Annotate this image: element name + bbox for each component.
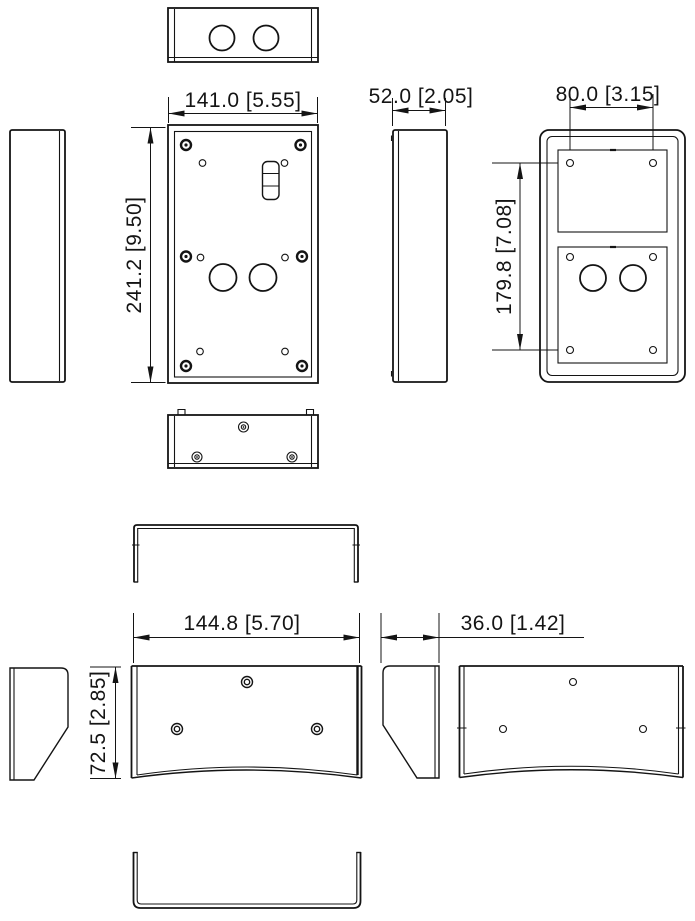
dim-hood-height: 72.5 [2.85]: [87, 667, 121, 779]
box-bottom-view: [168, 410, 318, 469]
dim-box-height: 241.2 [9.50]: [123, 128, 166, 383]
dim-box-width: 141.0 [5.55]: [169, 89, 318, 123]
box-top-view: [168, 8, 318, 62]
box-front-view: [168, 125, 318, 383]
dim-box-depth: 52.0 [2.05]: [369, 85, 474, 126]
conduit-hole: [620, 265, 646, 291]
dim-hood-width: 144.8 [5.70]: [134, 612, 360, 663]
dim-label-hood-height: 72.5 [2.85]: [87, 671, 110, 776]
technical-drawing: 141.0 [5.55] 52.0 [2.05] 80.0 [3.15]: [0, 0, 695, 921]
mount-hole: [500, 679, 647, 733]
dim-label-box-height: 241.2 [9.50]: [123, 197, 146, 314]
dim-label-box-width: 141.0 [5.55]: [185, 89, 302, 112]
hood-front-view: [132, 666, 362, 778]
box-side-view: [392, 130, 448, 382]
small-hole: [197, 160, 289, 355]
dim-label-hood-width: 144.8 [5.70]: [184, 612, 301, 635]
dim-hood-depth: 36.0 [1.42]: [381, 612, 584, 663]
mount-hole: [567, 160, 657, 354]
conduit-hole: [210, 264, 237, 291]
dim-label-hole-width: 80.0 [3.15]: [556, 83, 661, 106]
dim-label-box-depth: 52.0 [2.05]: [369, 85, 474, 108]
dim-label-hood-depth: 36.0 [1.42]: [461, 612, 566, 635]
screw-head: [192, 422, 297, 462]
hood-bottom-view: [133, 852, 361, 908]
dim-mount-hole-width: 80.0 [3.15]: [556, 83, 661, 150]
hood-top-view: [132, 525, 360, 582]
box-rear-view: [540, 130, 685, 382]
drawing-sheet: 141.0 [5.55] 52.0 [2.05] 80.0 [3.15]: [0, 0, 695, 921]
hood-rear-view: [457, 666, 686, 778]
hood-right-side-view: [383, 666, 439, 778]
cable-slot: [263, 162, 280, 200]
conduit-hole: [250, 264, 277, 291]
screw-head: [172, 677, 323, 735]
cable-hole: [210, 26, 235, 51]
cable-hole: [254, 26, 279, 51]
dim-label-hole-height: 179.8 [7.08]: [493, 198, 516, 315]
box-left-side-view: [10, 130, 65, 382]
dim-mount-hole-height: 179.8 [7.08]: [492, 163, 558, 350]
conduit-hole: [580, 265, 606, 291]
hood-left-side-view: [10, 668, 68, 780]
